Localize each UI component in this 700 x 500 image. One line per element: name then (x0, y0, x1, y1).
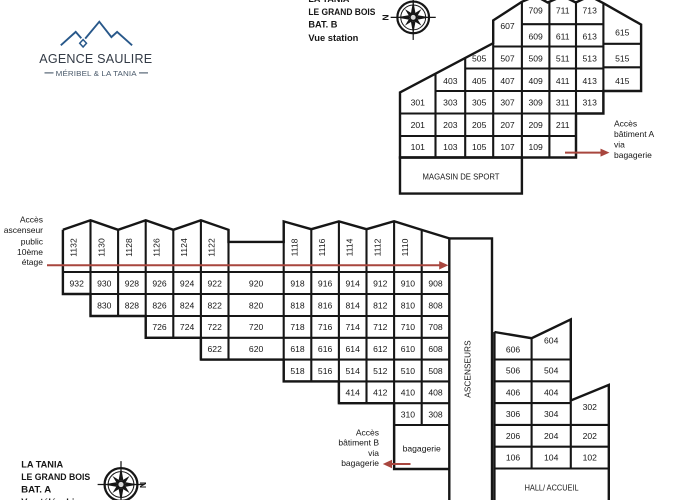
svg-text:LE GRAND BOIS: LE GRAND BOIS (21, 471, 90, 482)
svg-text:104: 104 (544, 453, 559, 463)
svg-text:étage: étage (22, 257, 44, 267)
svg-text:LA TANIA: LA TANIA (21, 458, 63, 469)
svg-text:514: 514 (346, 366, 361, 376)
svg-text:305: 305 (472, 98, 487, 108)
svg-text:820: 820 (249, 300, 264, 310)
svg-text:908: 908 (428, 278, 443, 288)
svg-text:720: 720 (249, 322, 264, 332)
svg-text:712: 712 (373, 322, 388, 332)
svg-text:409: 409 (528, 76, 543, 86)
svg-text:930: 930 (97, 278, 112, 288)
svg-text:307: 307 (500, 98, 515, 108)
svg-text:607: 607 (500, 21, 515, 31)
svg-text:404: 404 (544, 387, 559, 397)
svg-text:1114: 1114 (345, 238, 355, 256)
svg-text:710: 710 (401, 322, 416, 332)
svg-text:1116: 1116 (317, 238, 327, 256)
svg-text:303: 303 (443, 98, 458, 108)
svg-text:509: 509 (528, 53, 543, 63)
svg-text:812: 812 (373, 300, 388, 310)
svg-text:408: 408 (428, 388, 443, 398)
svg-text:10ème: 10ème (17, 247, 43, 257)
svg-text:928: 928 (125, 278, 140, 288)
svg-text:622: 622 (208, 344, 223, 354)
svg-text:1132: 1132 (69, 238, 79, 257)
svg-text:506: 506 (506, 366, 521, 376)
svg-text:604: 604 (544, 336, 559, 346)
svg-text:711: 711 (556, 5, 570, 15)
svg-text:ascenseur: ascenseur (4, 225, 43, 235)
svg-text:205: 205 (472, 120, 487, 130)
svg-text:1126: 1126 (152, 238, 162, 257)
svg-text:818: 818 (290, 300, 305, 310)
svg-text:206: 206 (506, 431, 521, 441)
svg-text:106: 106 (506, 453, 521, 463)
svg-text:714: 714 (346, 322, 361, 332)
svg-text:406: 406 (506, 387, 521, 397)
svg-text:302: 302 (583, 402, 598, 412)
svg-text:405: 405 (472, 76, 487, 86)
svg-text:724: 724 (180, 322, 195, 332)
svg-text:922: 922 (208, 278, 223, 288)
svg-text:414: 414 (346, 388, 361, 398)
svg-text:1124: 1124 (179, 238, 189, 257)
svg-text:bagagerie: bagagerie (403, 444, 441, 454)
svg-text:612: 612 (373, 344, 388, 354)
svg-text:203: 203 (443, 120, 458, 130)
svg-text:1110: 1110 (400, 238, 410, 256)
svg-text:415: 415 (615, 76, 630, 86)
svg-text:HALL/ ACCUEIL: HALL/ ACCUEIL (525, 482, 579, 492)
svg-text:412: 412 (373, 388, 388, 398)
svg-text:824: 824 (180, 300, 195, 310)
svg-text:Accès: Accès (614, 118, 637, 128)
svg-text:609: 609 (528, 31, 543, 41)
svg-text:207: 207 (500, 120, 515, 130)
svg-text:313: 313 (583, 98, 598, 108)
svg-text:620: 620 (249, 344, 264, 354)
svg-text:BAT. B: BAT. B (308, 18, 337, 29)
svg-text:bâtiment B: bâtiment B (338, 438, 379, 448)
svg-text:618: 618 (290, 344, 305, 354)
svg-text:410: 410 (401, 388, 416, 398)
svg-text:512: 512 (373, 366, 388, 376)
svg-text:MAGASIN DE SPORT: MAGASIN DE SPORT (423, 172, 501, 182)
svg-text:201: 201 (411, 120, 426, 130)
svg-text:914: 914 (346, 278, 361, 288)
svg-text:bagagerie: bagagerie (341, 458, 379, 468)
svg-text:920: 920 (249, 278, 264, 288)
svg-text:1112: 1112 (372, 238, 382, 256)
svg-text:304: 304 (544, 409, 559, 419)
svg-text:LE GRAND BOIS: LE GRAND BOIS (308, 6, 375, 17)
svg-text:912: 912 (373, 278, 388, 288)
svg-text:AGENCE SAULIRE: AGENCE SAULIRE (39, 52, 152, 66)
svg-text:826: 826 (152, 300, 167, 310)
svg-text:513: 513 (583, 53, 598, 63)
svg-text:N: N (138, 482, 148, 488)
svg-text:816: 816 (318, 300, 333, 310)
svg-text:932: 932 (70, 278, 85, 288)
svg-text:ASCENSEURS: ASCENSEURS (464, 340, 473, 398)
svg-text:MÉRIBEL & LA TANIA: MÉRIBEL & LA TANIA (56, 69, 137, 78)
svg-text:via: via (614, 139, 625, 149)
svg-text:bâtiment A: bâtiment A (614, 129, 654, 139)
svg-text:814: 814 (346, 300, 361, 310)
svg-text:311: 311 (556, 98, 570, 108)
svg-text:924: 924 (180, 278, 195, 288)
svg-text:918: 918 (290, 278, 305, 288)
svg-text:102: 102 (583, 453, 598, 463)
svg-text:611: 611 (556, 31, 570, 41)
svg-text:301: 301 (411, 98, 426, 108)
svg-text:310: 310 (401, 409, 416, 419)
svg-text:822: 822 (208, 300, 223, 310)
svg-text:public: public (21, 236, 44, 246)
svg-text:511: 511 (556, 53, 570, 63)
svg-text:306: 306 (506, 409, 521, 419)
svg-text:BAT. A: BAT. A (21, 484, 51, 495)
svg-text:518: 518 (290, 366, 305, 376)
svg-text:LA TANIA: LA TANIA (308, 0, 349, 4)
svg-text:Vue station: Vue station (308, 32, 358, 43)
svg-text:916: 916 (318, 278, 333, 288)
svg-text:107: 107 (500, 142, 515, 152)
svg-text:504: 504 (544, 366, 559, 376)
svg-text:202: 202 (583, 431, 598, 441)
svg-text:via: via (368, 448, 379, 458)
svg-text:718: 718 (290, 322, 305, 332)
svg-text:bagagerie: bagagerie (614, 150, 652, 160)
svg-text:1122: 1122 (207, 238, 217, 257)
svg-text:1128: 1128 (124, 238, 134, 257)
svg-text:413: 413 (583, 76, 598, 86)
svg-text:810: 810 (401, 300, 416, 310)
svg-text:407: 407 (500, 76, 515, 86)
svg-text:709: 709 (528, 5, 543, 15)
svg-text:516: 516 (318, 366, 333, 376)
svg-text:309: 309 (528, 98, 543, 108)
svg-text:1118: 1118 (290, 238, 300, 256)
svg-text:508: 508 (428, 366, 443, 376)
svg-text:103: 103 (443, 142, 458, 152)
svg-text:101: 101 (411, 142, 426, 152)
svg-text:614: 614 (346, 344, 361, 354)
svg-text:606: 606 (506, 344, 521, 354)
svg-text:722: 722 (208, 322, 223, 332)
svg-text:403: 403 (443, 76, 458, 86)
svg-text:615: 615 (615, 28, 630, 38)
svg-text:808: 808 (428, 300, 443, 310)
svg-text:109: 109 (528, 142, 543, 152)
svg-text:608: 608 (428, 344, 443, 354)
svg-text:716: 716 (318, 322, 333, 332)
svg-text:515: 515 (615, 54, 630, 64)
svg-text:616: 616 (318, 344, 333, 354)
svg-text:105: 105 (472, 142, 487, 152)
svg-text:211: 211 (556, 120, 570, 130)
svg-text:926: 926 (152, 278, 167, 288)
svg-text:505: 505 (472, 53, 487, 63)
svg-text:204: 204 (544, 431, 559, 441)
svg-text:507: 507 (500, 53, 515, 63)
svg-text:Accès: Accès (356, 428, 379, 438)
svg-text:411: 411 (556, 76, 570, 86)
svg-text:510: 510 (401, 366, 416, 376)
svg-text:1130: 1130 (96, 238, 106, 257)
svg-text:308: 308 (428, 409, 443, 419)
svg-text:910: 910 (401, 278, 416, 288)
svg-text:613: 613 (583, 31, 598, 41)
svg-text:828: 828 (125, 300, 140, 310)
svg-text:N: N (381, 14, 391, 20)
svg-text:610: 610 (401, 344, 416, 354)
svg-text:Vue télécabine: Vue télécabine (21, 496, 85, 500)
svg-text:713: 713 (583, 5, 598, 15)
svg-text:Accès: Accès (20, 215, 43, 225)
svg-text:209: 209 (528, 120, 543, 130)
svg-text:726: 726 (152, 322, 167, 332)
svg-text:830: 830 (97, 300, 112, 310)
svg-text:708: 708 (428, 322, 443, 332)
